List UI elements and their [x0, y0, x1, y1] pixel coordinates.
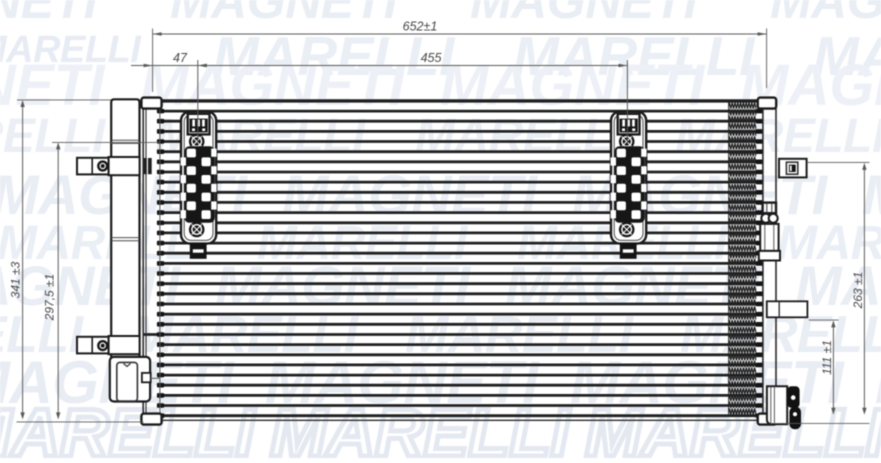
svg-text:47: 47 [173, 51, 188, 65]
svg-text:652±1: 652±1 [403, 20, 438, 34]
svg-text:MARELLI: MARELLI [675, 110, 881, 163]
svg-text:MARELLI: MARELLI [0, 110, 107, 163]
svg-text:263 ±1: 263 ±1 [851, 272, 865, 310]
svg-text:455: 455 [421, 51, 442, 65]
svg-text:297,5 ±1: 297,5 ±1 [43, 274, 57, 322]
svg-text:111 ±1: 111 ±1 [820, 340, 834, 375]
svg-text:341 ±3: 341 ±3 [9, 261, 23, 298]
svg-text:MARELLI: MARELLI [415, 110, 627, 163]
svg-text:MAGNETI: MAGNETI [0, 0, 99, 29]
svg-text:MAGNETI: MAGNETI [440, 53, 706, 118]
svg-text:MAGNETI: MAGNETI [0, 53, 106, 118]
